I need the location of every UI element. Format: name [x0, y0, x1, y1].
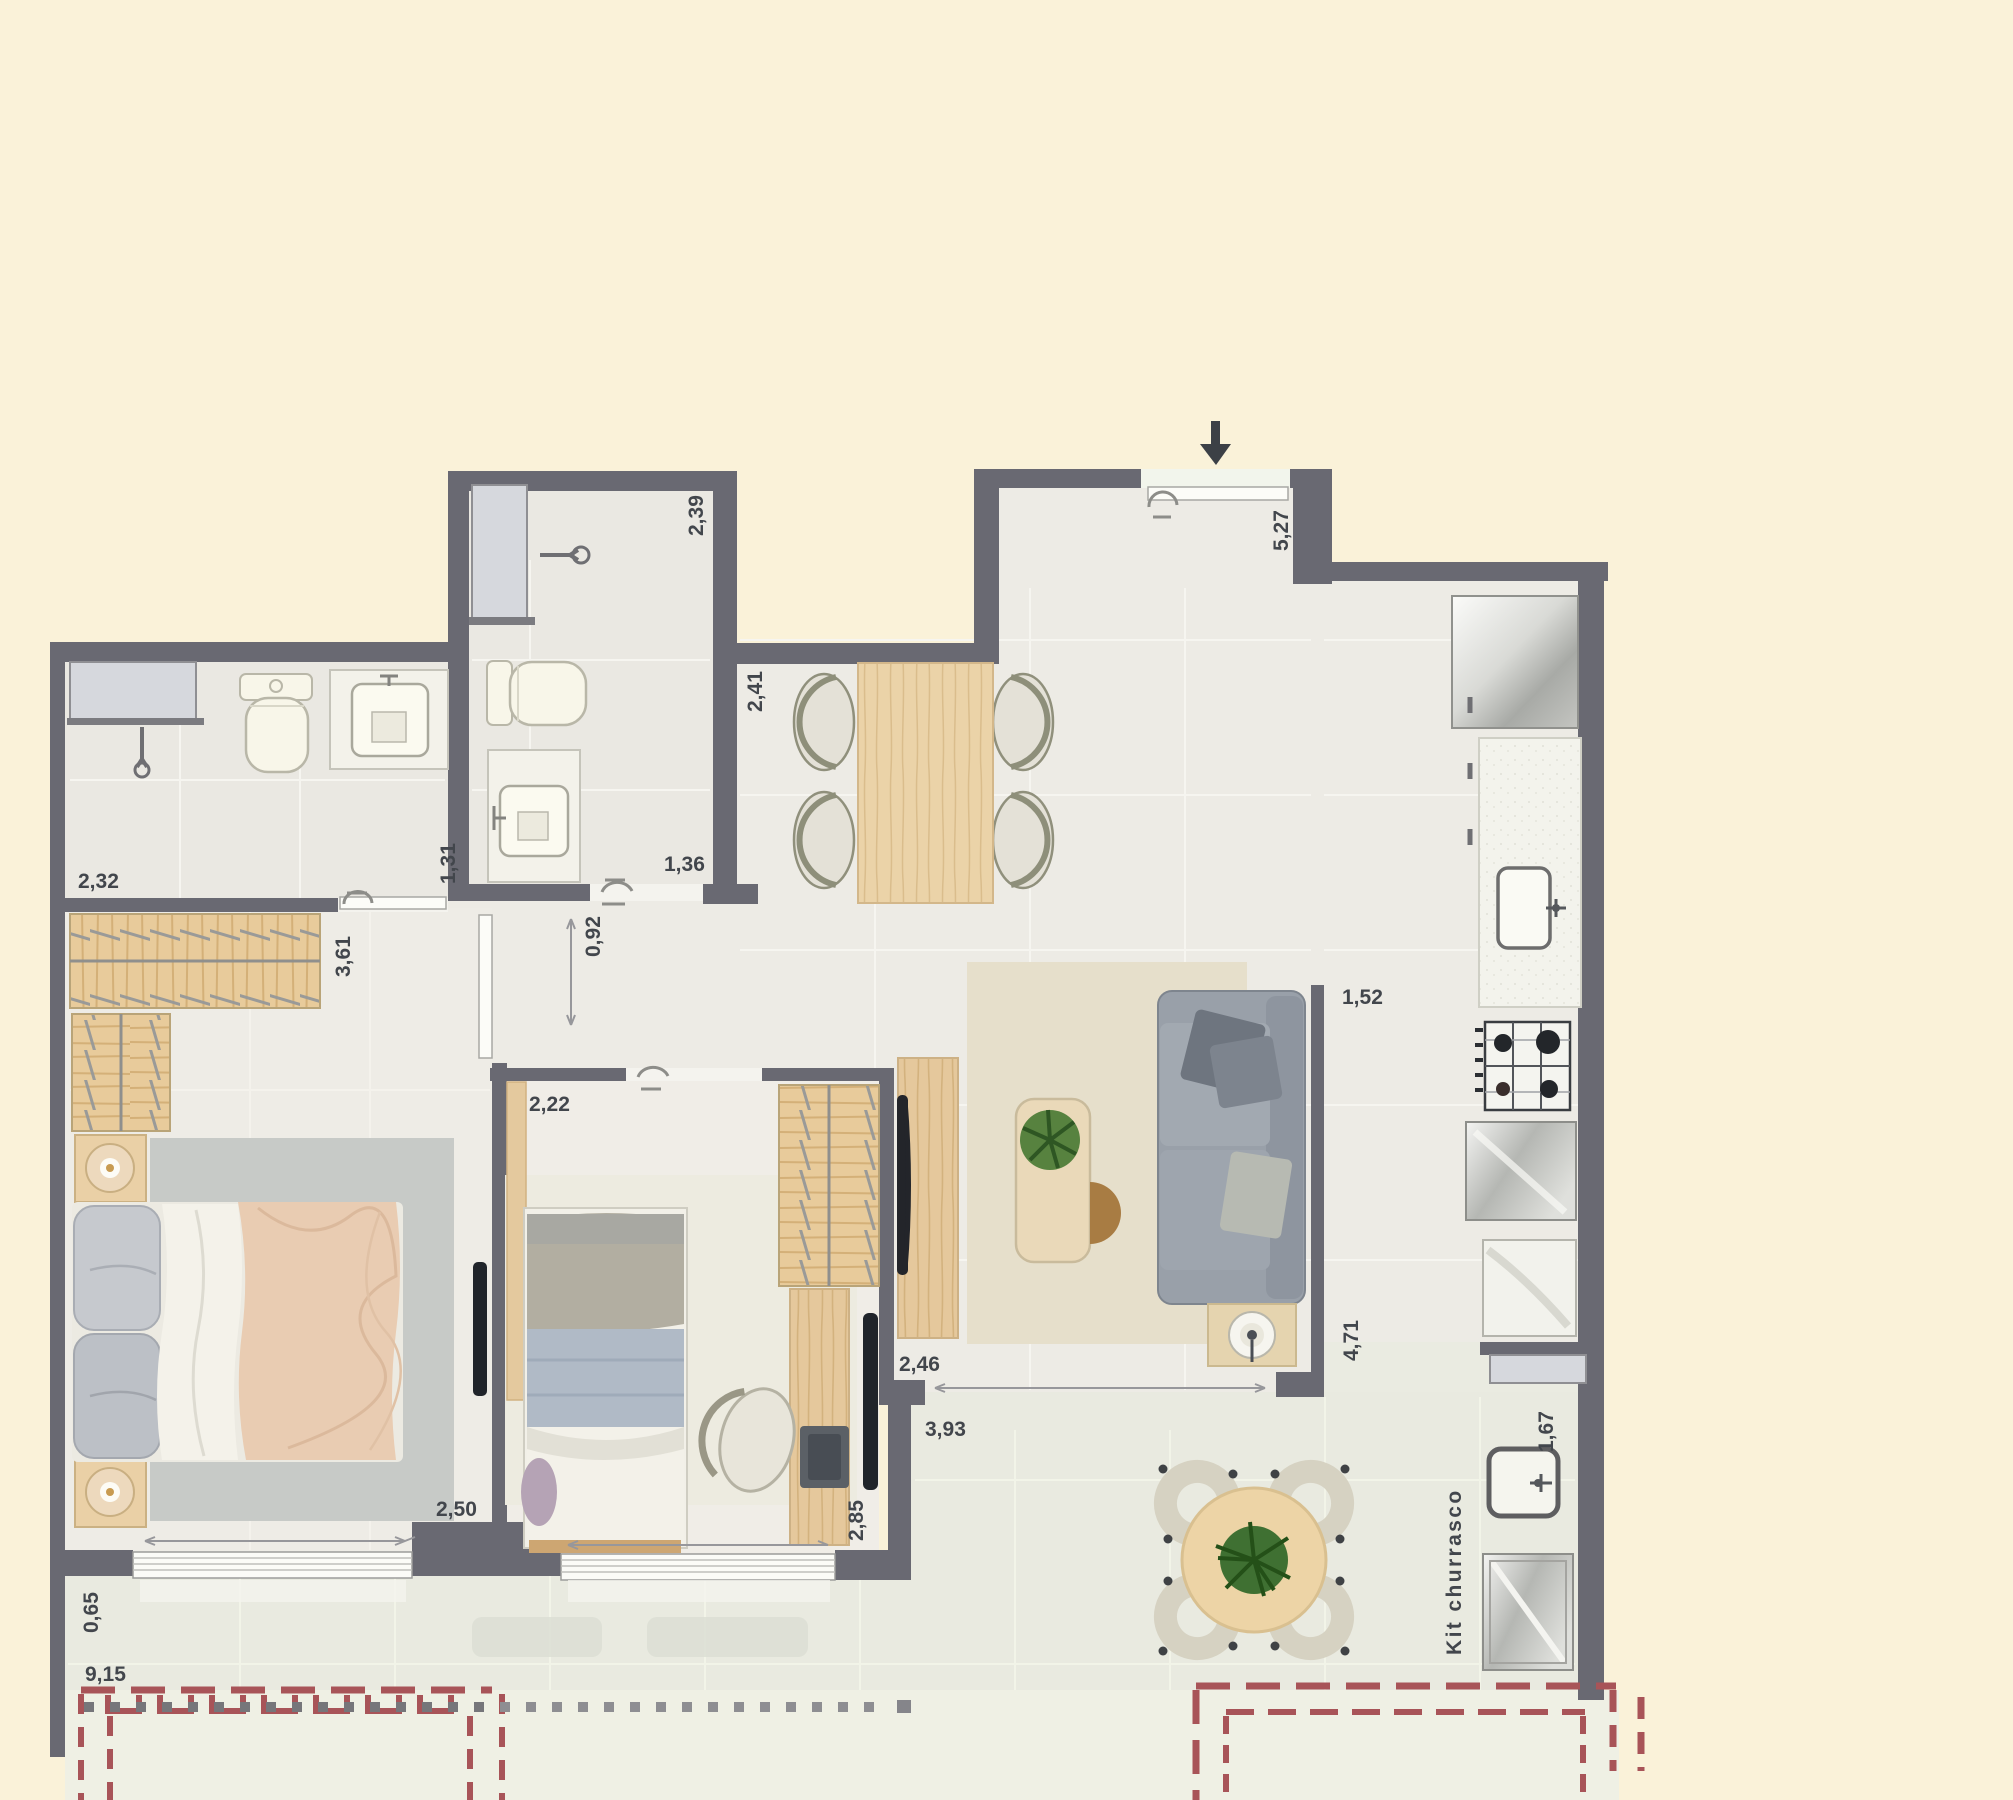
- svg-text:1,67: 1,67: [1535, 1411, 1558, 1452]
- svg-text:0,65: 0,65: [80, 1592, 103, 1633]
- svg-text:4,71: 4,71: [1340, 1320, 1363, 1361]
- svg-text:2,41: 2,41: [744, 671, 767, 712]
- svg-text:2,39: 2,39: [685, 495, 708, 536]
- svg-text:1,31: 1,31: [437, 843, 460, 884]
- svg-text:1,52: 1,52: [1342, 986, 1383, 1009]
- svg-text:0,92: 0,92: [582, 916, 605, 957]
- svg-text:5,27: 5,27: [1270, 510, 1293, 551]
- svg-text:2,46: 2,46: [899, 1353, 940, 1376]
- svg-text:2,22: 2,22: [529, 1093, 570, 1116]
- svg-text:1,36: 1,36: [664, 853, 705, 876]
- svg-text:3,61: 3,61: [332, 936, 355, 977]
- svg-text:Kit churrasco: Kit churrasco: [1443, 1488, 1466, 1655]
- svg-text:2,32: 2,32: [78, 870, 119, 893]
- svg-text:2,50: 2,50: [436, 1498, 477, 1521]
- svg-text:2,85: 2,85: [845, 1500, 868, 1541]
- svg-text:9,15: 9,15: [85, 1663, 126, 1686]
- svg-text:3,93: 3,93: [925, 1418, 966, 1441]
